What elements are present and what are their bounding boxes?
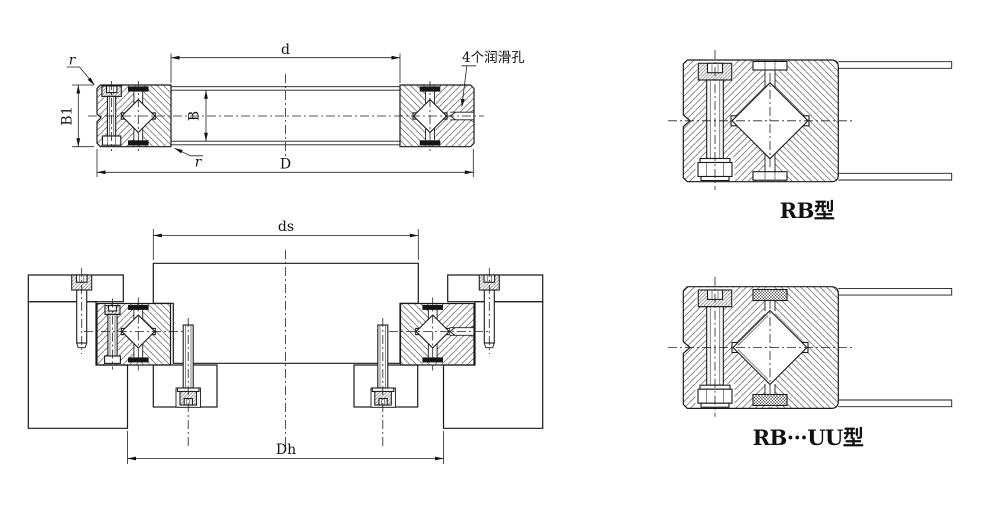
dimension-B: B (187, 90, 208, 141)
inner-ring-band (838, 62, 951, 180)
bearing-right (401, 298, 475, 371)
lube-note-label: 4个润滑孔 (462, 50, 525, 66)
rb-type-label: RB型 (780, 198, 835, 223)
bearing-technical-drawing-page: d D B1 B r (0, 0, 1000, 506)
dimension-Dh: Dh (128, 431, 444, 464)
cage-plate (753, 62, 787, 71)
rbuu-type-label: RB···UU型 (753, 425, 864, 450)
radius-bottom-label: r (195, 155, 203, 171)
dim-B-label: B (187, 111, 203, 121)
rbuu-type-panel: RB···UU型 (668, 277, 952, 450)
cage-plate (753, 172, 787, 181)
inner-ring-band (838, 288, 951, 406)
dim-B1-label: B1 (60, 106, 76, 125)
bearing-technical-drawing: d D B1 B r (0, 0, 1000, 506)
dim-d-label: d (281, 42, 290, 58)
dim-D-label: D (280, 157, 291, 173)
plate-bolt-right (371, 318, 396, 446)
bearing-left (97, 298, 171, 371)
bearing-section-view: d D B1 B r (60, 42, 526, 177)
dimension-D: D (97, 149, 473, 177)
plate-bolt-left (176, 318, 201, 446)
mounting-assembly-view: ds Dh (28, 219, 542, 464)
cover-bolt-left (72, 268, 92, 354)
radius-leader-bottom: r (173, 146, 203, 170)
radius-leader-top: r (67, 53, 97, 87)
radius-top-label: r (69, 53, 77, 69)
rb-type-panel: RB型 (668, 50, 952, 223)
cover-bolt-right (479, 268, 499, 354)
dim-Dh-label: Dh (276, 442, 296, 458)
dim-ds-label: ds (278, 219, 294, 235)
